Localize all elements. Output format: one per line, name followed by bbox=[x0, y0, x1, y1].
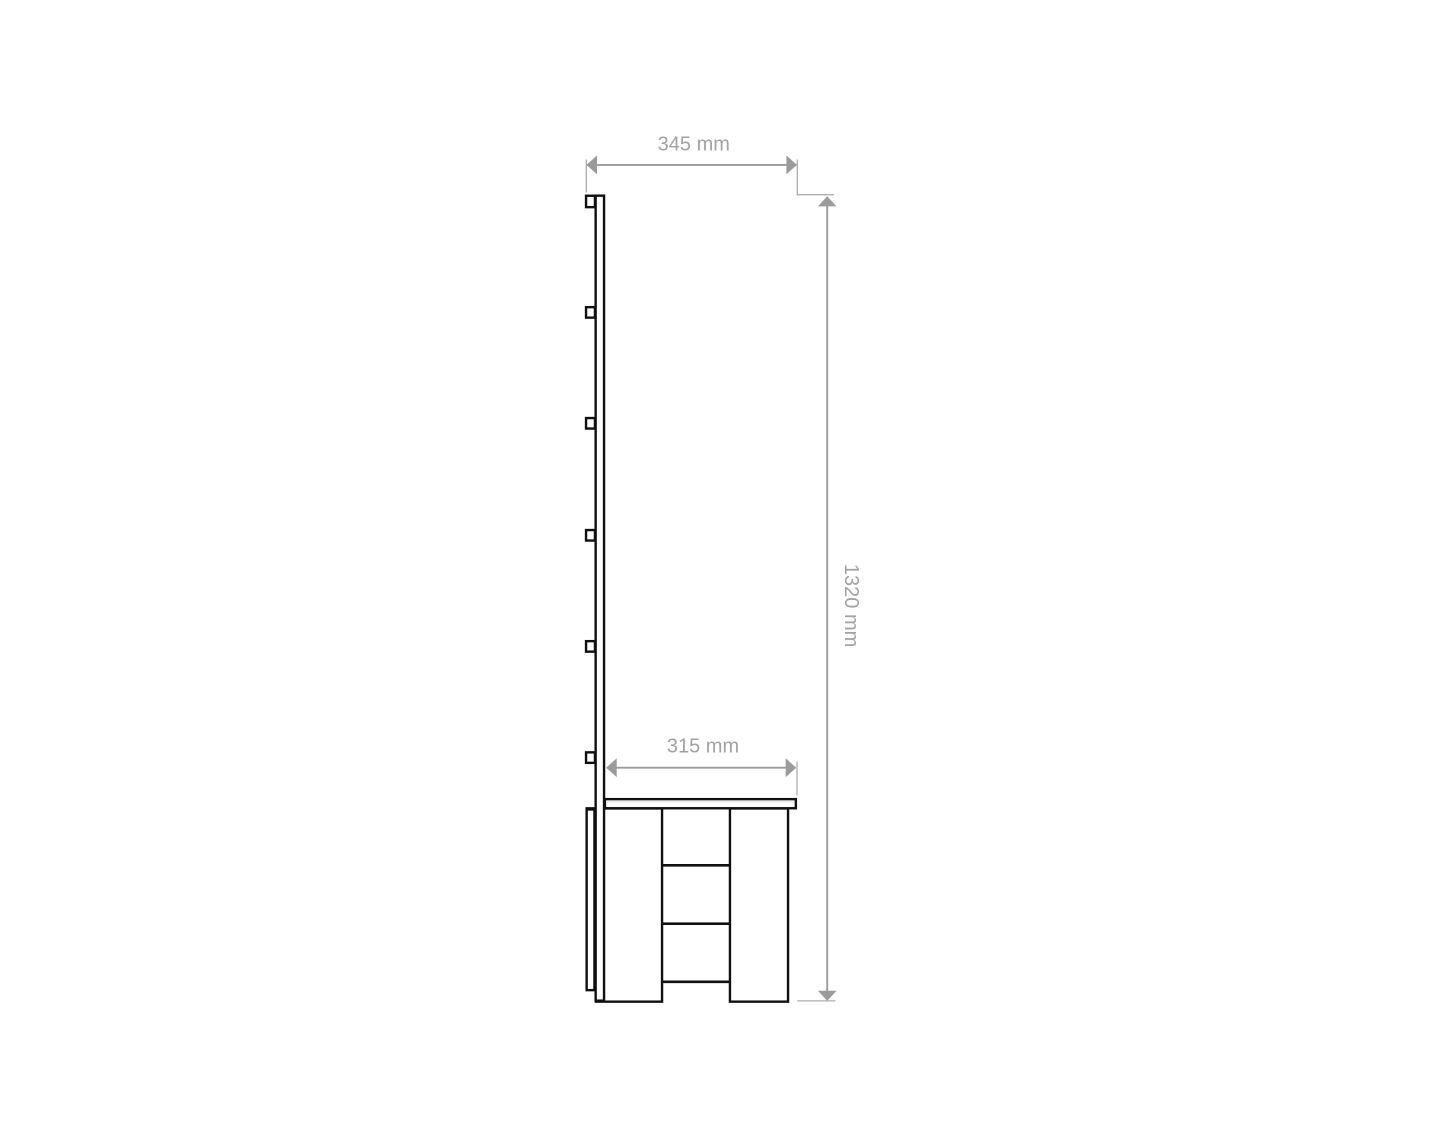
svg-text:345 mm: 345 mm bbox=[658, 133, 730, 155]
svg-text:1320 mm: 1320 mm bbox=[840, 564, 862, 647]
svg-text:315 mm: 315 mm bbox=[667, 736, 739, 758]
